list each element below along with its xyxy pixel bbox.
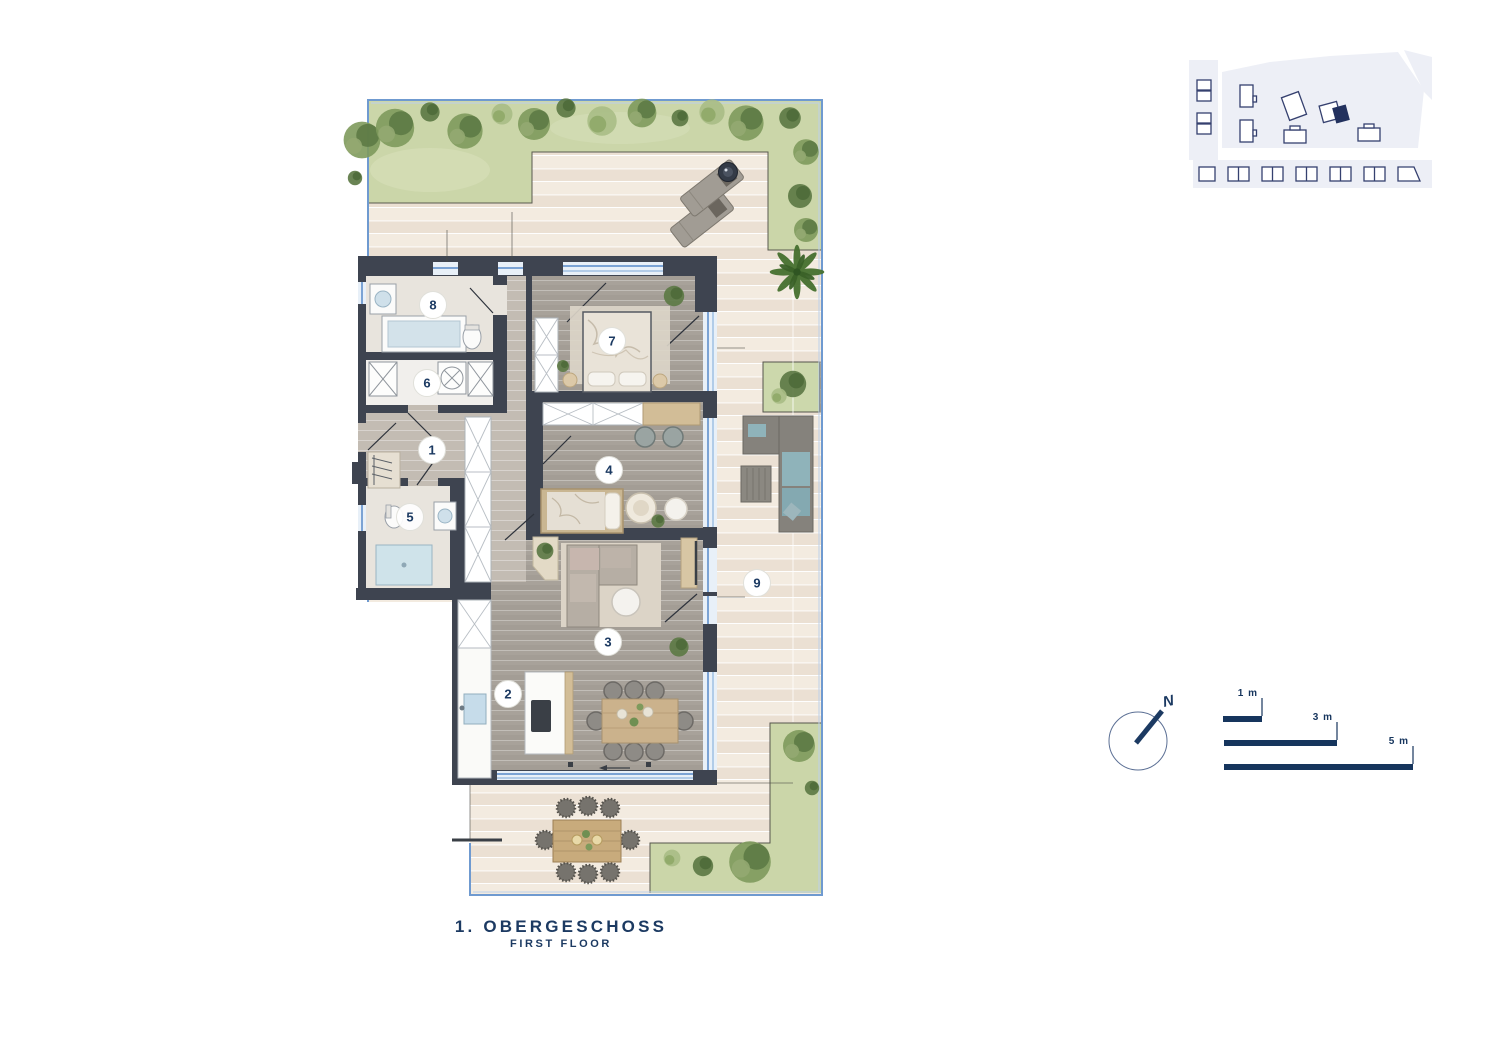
- tree: [664, 850, 681, 867]
- sofa-cushion: [570, 574, 596, 602]
- plan-title: 1. OBERGESCHOSS FIRST FLOOR: [455, 917, 667, 950]
- tree: [628, 99, 657, 128]
- tree: [699, 99, 724, 124]
- washbasin-bowl: [438, 509, 452, 523]
- plan-title-sub: FIRST FLOOR: [510, 938, 612, 950]
- terrace-side-table: [719, 163, 738, 182]
- scale-label-1m: 1 m: [1238, 688, 1258, 699]
- pillow: [605, 493, 620, 529]
- pillow: [588, 372, 615, 386]
- tree: [447, 113, 482, 148]
- room-badge-9: 9: [744, 570, 771, 597]
- island-bar-top: [565, 672, 573, 754]
- tv-sideboard: [681, 538, 697, 588]
- scale-label-3m: 3 m: [1313, 712, 1333, 723]
- room-badge-7-number: 7: [608, 334, 615, 349]
- room-badge-6-number: 6: [423, 376, 430, 391]
- room6-door-opening: [408, 405, 438, 413]
- dining-chair: [646, 742, 664, 760]
- tree: [492, 104, 513, 125]
- scale-bars: 1 m 3 m 5 m: [1223, 688, 1413, 770]
- north-label: N: [1161, 692, 1176, 711]
- plant: [651, 514, 664, 527]
- window-bottom-slider: [497, 771, 693, 780]
- tree: [693, 856, 713, 876]
- tree: [518, 108, 550, 140]
- plant: [664, 286, 684, 306]
- room-badge-3: 3: [595, 629, 622, 656]
- coffee-table: [612, 588, 640, 616]
- toilet-tank: [465, 325, 479, 330]
- plate: [617, 709, 627, 719]
- tree: [344, 122, 381, 159]
- cooktop: [531, 700, 551, 732]
- room-badge-3-number: 3: [604, 635, 611, 650]
- pillow: [619, 372, 646, 386]
- room-badge-9-number: 9: [753, 576, 760, 591]
- room-badge-7: 7: [599, 328, 626, 355]
- compass: N: [1109, 692, 1177, 770]
- tree: [348, 171, 362, 185]
- plant: [537, 543, 554, 560]
- duvet: [547, 492, 605, 530]
- room8-door-opening: [493, 285, 507, 315]
- tree: [805, 781, 819, 795]
- grass-highlight: [550, 112, 690, 144]
- pouf: [665, 498, 687, 520]
- compass-needle: [1136, 711, 1162, 743]
- planter-bush: [771, 388, 786, 403]
- room5-door-opening: [408, 478, 438, 486]
- desk-chair: [635, 427, 655, 447]
- room-badge-8-number: 8: [429, 298, 436, 313]
- room-badge-8: 8: [420, 292, 447, 319]
- coat-rack: [368, 452, 400, 488]
- tree: [783, 730, 815, 762]
- tree: [729, 841, 771, 883]
- outdoor-ottoman: [741, 466, 771, 502]
- room-badge-4: 4: [596, 457, 623, 484]
- entrance-opening: [358, 423, 366, 452]
- tree: [376, 109, 414, 147]
- palm-tree: [770, 245, 825, 300]
- desk-chair: [663, 427, 683, 447]
- plant: [557, 360, 569, 372]
- nightstand: [563, 373, 577, 387]
- room-badge-6: 6: [414, 370, 441, 397]
- plate: [643, 707, 653, 717]
- scale-label-5m: 5 m: [1389, 736, 1409, 747]
- room-badge-1: 1: [419, 437, 446, 464]
- table-plant: [637, 704, 644, 711]
- shower-drain: [402, 563, 407, 568]
- nightstand: [653, 374, 667, 388]
- hall-floor-lower: [491, 478, 526, 600]
- bathtub-water: [388, 321, 460, 347]
- washbasin-bowl: [375, 291, 391, 307]
- tree: [779, 107, 801, 129]
- tree: [794, 218, 818, 242]
- dining-chair: [625, 743, 643, 761]
- corridor-floor: [507, 276, 526, 413]
- table-plant: [630, 718, 639, 727]
- faucet: [460, 706, 465, 711]
- dining-chair: [646, 682, 664, 700]
- desk: [643, 403, 700, 425]
- toilet-tank: [386, 505, 391, 518]
- kitchen-sink: [464, 694, 486, 724]
- floorplan-page: 1 2 3 4 5 6 7 8: [0, 0, 1500, 1050]
- dining-chair: [604, 742, 622, 760]
- room-badge-2: 2: [495, 681, 522, 708]
- armchair-seat: [633, 500, 649, 516]
- grass-highlight: [370, 148, 490, 192]
- room-badge-4-number: 4: [605, 463, 613, 478]
- sofa-cushion: [570, 548, 599, 570]
- tree: [672, 110, 689, 127]
- room-badge-2-number: 2: [504, 687, 511, 702]
- plan-title-main: 1. OBERGESCHOSS: [455, 917, 667, 936]
- dining-chair: [604, 682, 622, 700]
- floorplan-canvas: 1 2 3 4 5 6 7 8: [0, 0, 1500, 1050]
- room-badge-5: 5: [397, 504, 424, 531]
- site-plan-area: [1189, 60, 1218, 160]
- tree: [788, 184, 812, 208]
- room-badge-1-number: 1: [428, 443, 435, 458]
- sofa-cushion: [601, 548, 631, 568]
- tree: [793, 139, 819, 165]
- tree: [587, 106, 616, 135]
- tree: [728, 105, 763, 140]
- tree: [420, 102, 439, 121]
- plant: [669, 637, 688, 656]
- scale-bar-1m: 1 m: [1223, 688, 1262, 722]
- site-plan: [1189, 50, 1432, 188]
- tree: [556, 98, 575, 117]
- room-badge-5-number: 5: [406, 510, 413, 525]
- dining-chair: [625, 681, 643, 699]
